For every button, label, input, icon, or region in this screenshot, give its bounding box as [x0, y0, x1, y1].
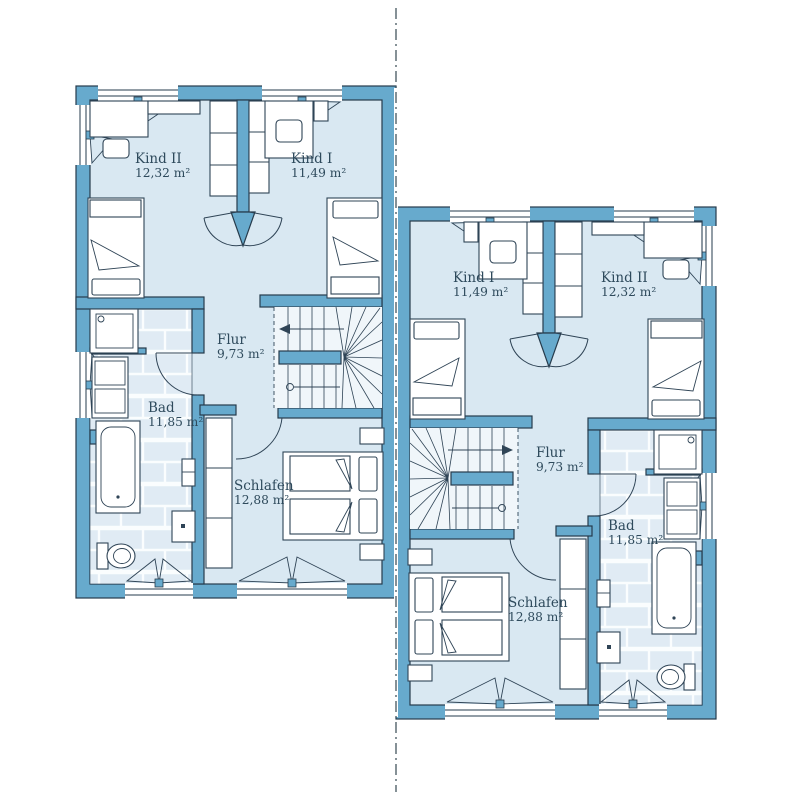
room-area: 12,32 m²	[135, 167, 190, 181]
floor-plan-page: Kind II 12,32 m² Kind I 11,49 m² Flur 9,…	[0, 0, 800, 800]
room-area: 12,32 m²	[601, 286, 656, 300]
room-label-kind1-right: Kind I 11,49 m²	[453, 271, 508, 300]
room-label-kind2-right: Kind II 12,32 m²	[601, 271, 656, 300]
room-area: 11,85 m²	[608, 534, 663, 548]
room-area: 9,73 m²	[217, 348, 264, 362]
room-name: Kind II	[601, 271, 656, 286]
room-label-bad-left: Bad 11,85 m²	[148, 401, 203, 430]
room-label-flur-left: Flur 9,73 m²	[217, 333, 264, 362]
room-name: Kind I	[291, 152, 346, 167]
room-label-bad-right: Bad 11,85 m²	[608, 519, 663, 548]
room-area: 12,88 m²	[508, 611, 568, 625]
room-name: Schlafen	[508, 596, 568, 611]
room-area: 11,85 m²	[148, 416, 203, 430]
room-name: Bad	[148, 401, 203, 416]
room-area: 12,88 m²	[234, 494, 294, 508]
room-name: Bad	[608, 519, 663, 534]
room-area: 9,73 m²	[536, 461, 583, 475]
room-name: Flur	[536, 446, 583, 461]
room-label-schlafen-right: Schlafen 12,88 m²	[508, 596, 568, 625]
room-label-schlafen-left: Schlafen 12,88 m²	[234, 479, 294, 508]
room-label-flur-right: Flur 9,73 m²	[536, 446, 583, 475]
room-name: Kind II	[135, 152, 190, 167]
room-name: Flur	[217, 333, 264, 348]
room-label-kind2-left: Kind II 12,32 m²	[135, 152, 190, 181]
room-area: 11,49 m²	[453, 286, 508, 300]
floor-plan	[0, 0, 800, 800]
room-label-kind1-left: Kind I 11,49 m²	[291, 152, 346, 181]
room-name: Schlafen	[234, 479, 294, 494]
room-name: Kind I	[453, 271, 508, 286]
room-area: 11,49 m²	[291, 167, 346, 181]
